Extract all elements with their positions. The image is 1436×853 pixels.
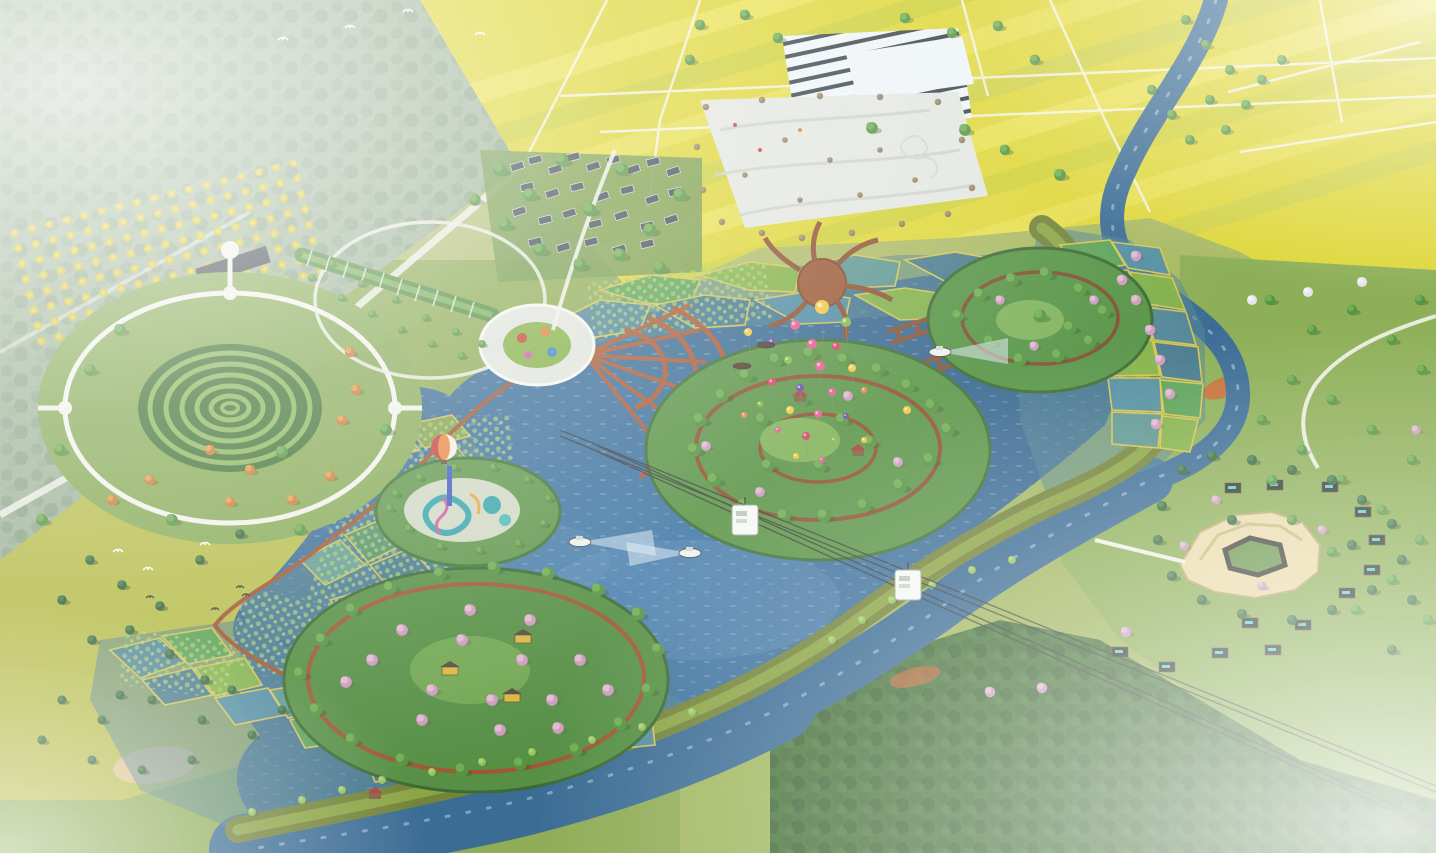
scene-svg <box>0 0 1436 853</box>
atmospheric-haze <box>0 0 1436 853</box>
aerial-rendering-canvas <box>0 0 1436 853</box>
